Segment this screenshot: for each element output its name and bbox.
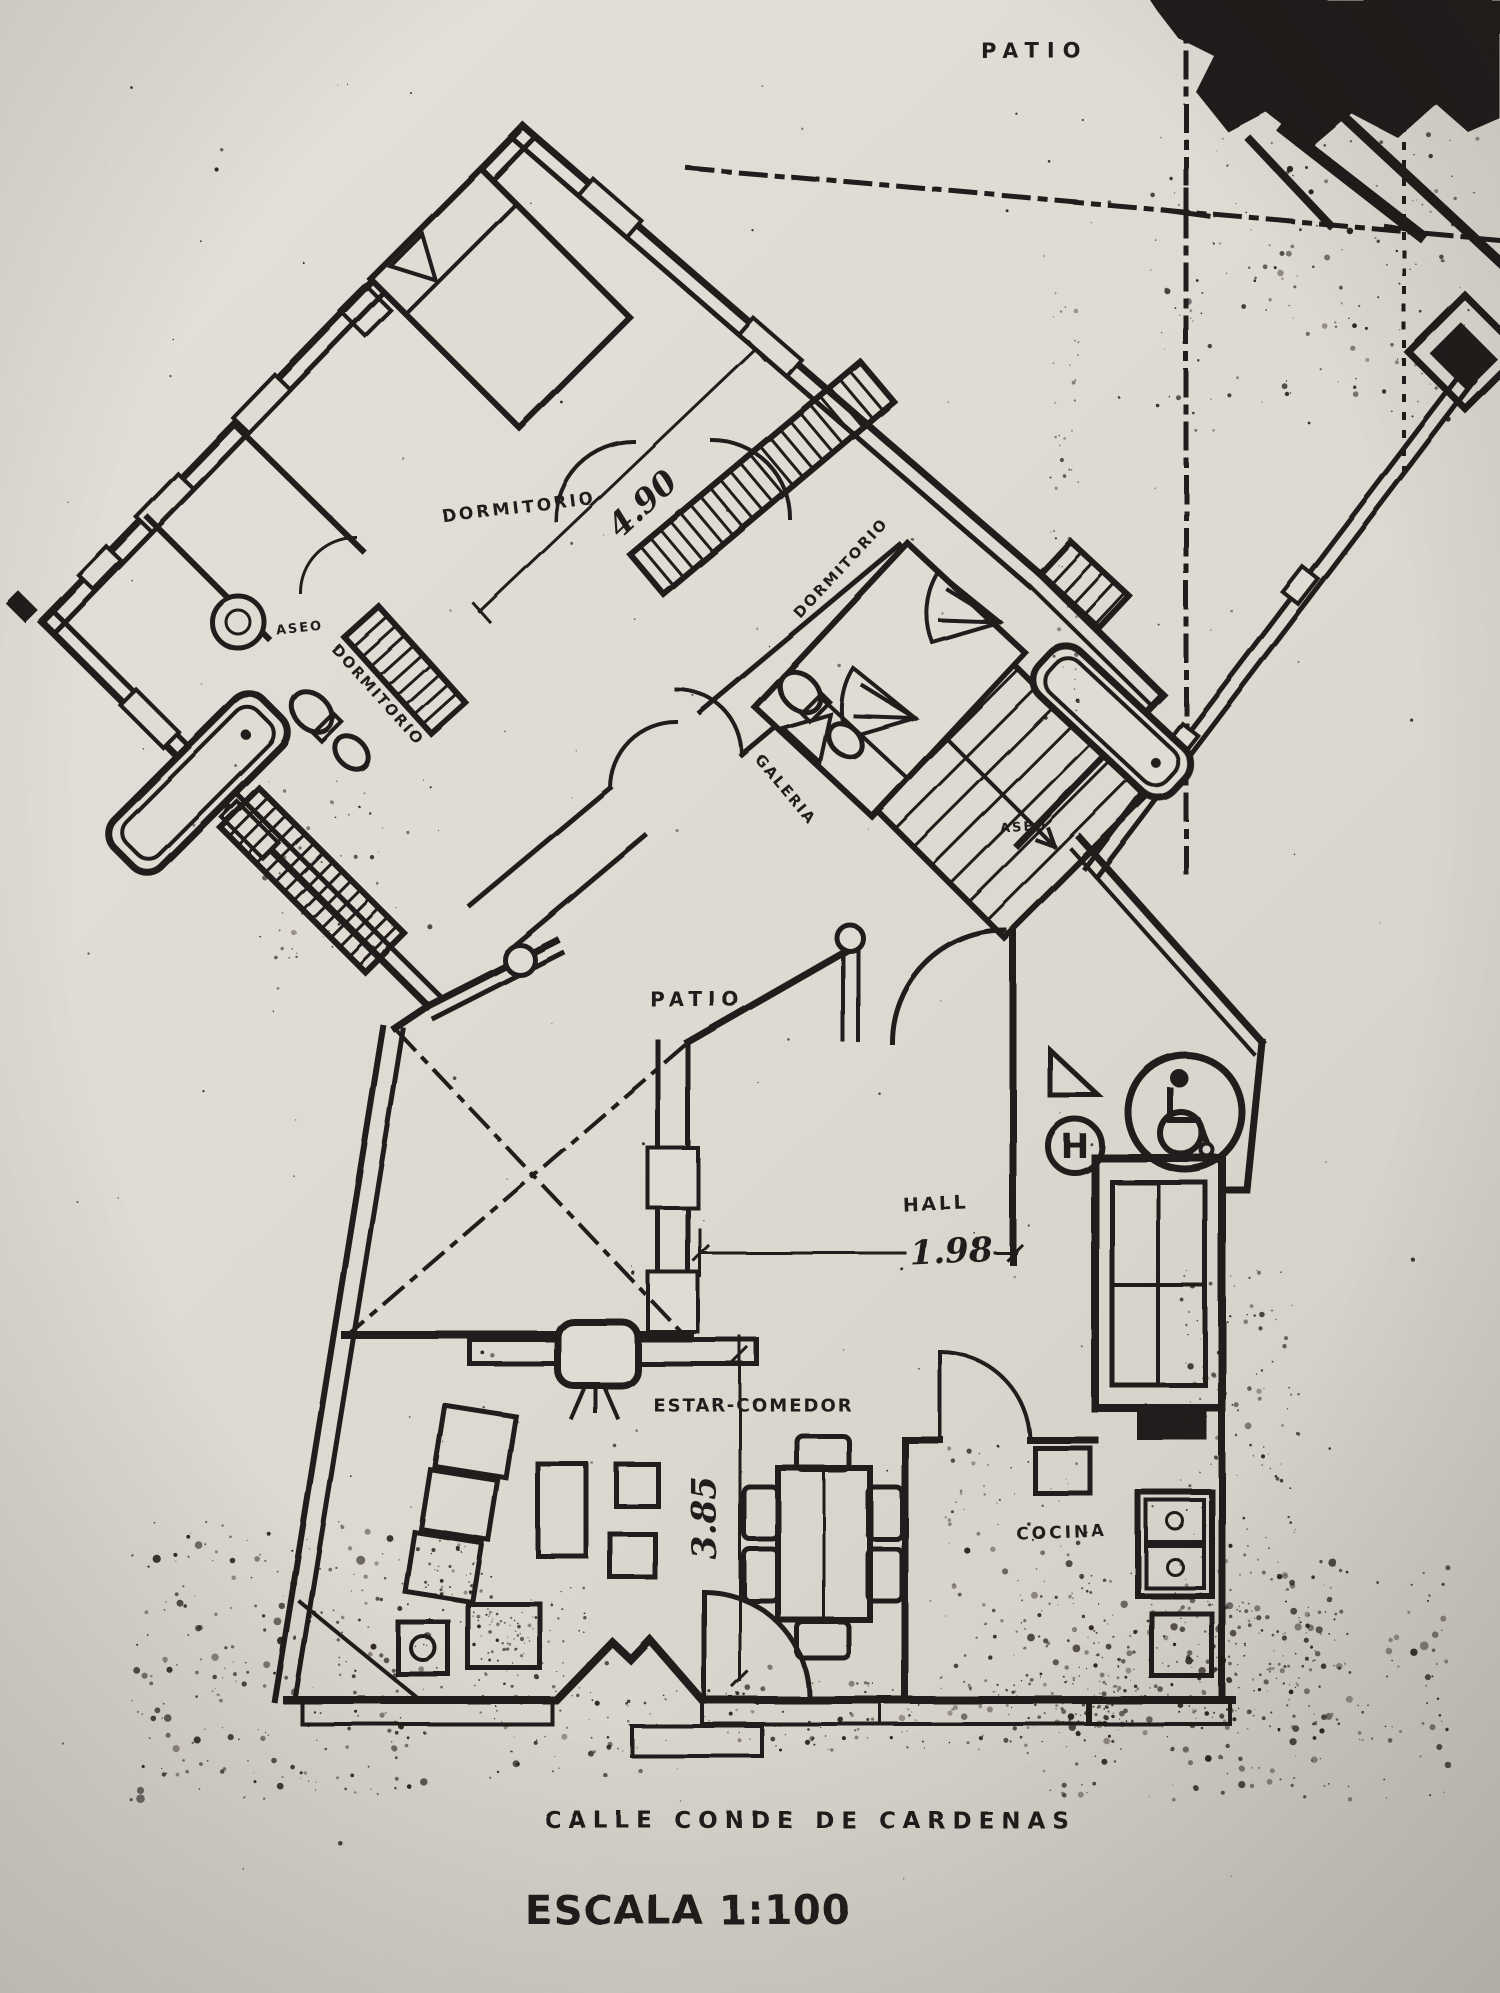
scanned-floor-plan-page: H <box>0 0 1500 1993</box>
photo-vignette <box>0 0 1500 1993</box>
floor-plan-drawing: H <box>0 0 1500 1993</box>
